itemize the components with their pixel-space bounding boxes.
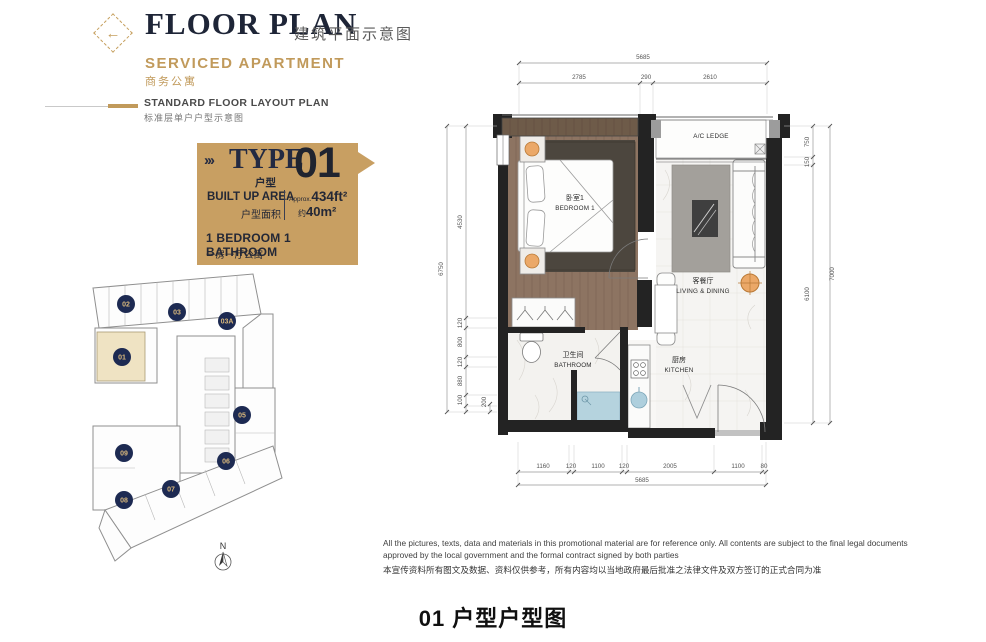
disclaimer-cn: 本宣传资料所有图文及数据、资料仅供参考，所有内容均以当地政府最后批准之法律文件及… xyxy=(383,564,935,576)
unit-badge-07: 07 xyxy=(162,480,180,498)
chevrons-icon: ››› xyxy=(204,152,213,169)
living-label-cn: 客餐厅 xyxy=(693,276,714,285)
built-up-area-label-cn: 户型面积 xyxy=(241,206,281,221)
card-divider xyxy=(284,190,285,220)
unit-type-card: ››› TYPE 户型 01 BUILT UP AREA 户型面积 Approx… xyxy=(197,143,358,265)
svg-text:05: 05 xyxy=(238,413,246,420)
unit-badge-06: 06 xyxy=(217,452,235,470)
svg-text:2785: 2785 xyxy=(572,74,586,81)
svg-text:880: 880 xyxy=(457,375,464,386)
approx-prefix: Approx. xyxy=(289,196,311,203)
key-plan-footprint xyxy=(93,274,282,561)
svg-text:N: N xyxy=(220,541,227,551)
svg-text:120: 120 xyxy=(457,317,464,328)
sofa xyxy=(733,160,765,268)
svg-text:08: 08 xyxy=(120,498,128,505)
north-compass-icon: N xyxy=(215,541,231,570)
ac-ledge-label: A/C LEDGE xyxy=(693,133,728,140)
layout-description-cn: 一房一厅公寓 xyxy=(206,247,263,261)
svg-text:290: 290 xyxy=(641,74,652,81)
main-floor-plan: 卧室1 BEDROOM 1 xyxy=(435,40,900,500)
svg-text:6100: 6100 xyxy=(804,287,811,301)
dining-set xyxy=(655,273,677,345)
subtitle: SERVICED APARTMENT xyxy=(145,55,345,72)
disclaimer-en: All the pictures, texts, data and materi… xyxy=(383,538,935,561)
unit-badge-03A: 03A xyxy=(218,312,236,330)
svg-text:4530: 4530 xyxy=(457,215,464,229)
svg-text:1100: 1100 xyxy=(731,463,745,470)
tv-unit xyxy=(692,200,718,237)
unit-number: 01 xyxy=(294,139,340,188)
page-title-cn: 建筑平面示意图 xyxy=(294,23,413,44)
svg-text:120: 120 xyxy=(457,356,464,367)
left-arrow-icon: ← xyxy=(106,26,121,41)
svg-text:2005: 2005 xyxy=(663,463,677,470)
unit-badge-05: 05 xyxy=(233,406,251,424)
unit-badge-08: 08 xyxy=(115,491,133,509)
svg-text:120: 120 xyxy=(619,463,630,470)
living-label-en: LIVING & DINING xyxy=(676,288,729,295)
divider-gold xyxy=(108,104,138,108)
svg-text:06: 06 xyxy=(222,459,230,466)
unit-badge-03: 03 xyxy=(168,303,186,321)
svg-text:150: 150 xyxy=(804,156,811,167)
card-tail-pointer xyxy=(358,152,375,174)
ac-ledge: A/C LEDGE xyxy=(651,117,780,162)
type-label: TYPE xyxy=(229,144,304,176)
bedroom-label-cn: 卧室1 xyxy=(566,193,584,202)
kitchen-label-en: KITCHEN xyxy=(664,367,693,374)
svg-text:7000: 7000 xyxy=(829,267,836,281)
svg-text:5685: 5685 xyxy=(636,54,650,61)
area-metric: 约40m² xyxy=(298,204,336,219)
subtitle-cn: 商务公寓 xyxy=(145,73,197,89)
entry-threshold xyxy=(715,430,760,436)
stove-icon xyxy=(631,360,648,378)
area-imperial-value: 434ft² xyxy=(311,189,347,204)
metric-prefix: 约 xyxy=(298,209,306,218)
area-metric-value: 40m² xyxy=(306,204,336,219)
kitchen-counter xyxy=(628,345,650,428)
key-plan: 02 03 03A 01 05 09 06 07 08 N xyxy=(85,268,285,578)
bathroom-label-cn: 卫生间 xyxy=(563,350,584,359)
unit-badge-09: 09 xyxy=(115,444,133,462)
svg-text:6750: 6750 xyxy=(438,262,445,276)
unit-badge-02: 02 xyxy=(117,295,135,313)
brand-diamond-icon: ← xyxy=(92,12,134,54)
svg-text:01: 01 xyxy=(118,355,126,362)
svg-text:100: 100 xyxy=(457,394,464,405)
svg-text:750: 750 xyxy=(804,136,811,147)
kitchen-label-cn: 厨房 xyxy=(672,355,686,364)
bedroom-label-en: BEDROOM 1 xyxy=(555,205,595,212)
svg-text:03: 03 xyxy=(173,310,181,317)
svg-text:03A: 03A xyxy=(221,319,234,326)
left-window xyxy=(497,135,509,165)
wardrobe xyxy=(512,298,575,327)
unit-badge-01: 01 xyxy=(113,348,131,366)
disclaimer: All the pictures, texts, data and materi… xyxy=(383,538,935,576)
type-label-cn: 户型 xyxy=(255,175,276,190)
svg-text:1160: 1160 xyxy=(536,463,550,470)
brochure-page: ← FLOOR PLAN 建筑平面示意图 SERVICED APARTMENT … xyxy=(0,0,986,642)
area-imperial: Approx.434ft² xyxy=(289,189,347,204)
svg-text:1100: 1100 xyxy=(591,463,605,470)
page-caption: 01 户型户型图 xyxy=(0,601,986,633)
divider-hairline xyxy=(45,106,113,107)
svg-text:2610: 2610 xyxy=(703,74,717,81)
wood-ledge xyxy=(502,115,638,136)
section-title-cn: 标准层单户户型示意图 xyxy=(144,111,244,124)
svg-text:800: 800 xyxy=(457,336,464,347)
svg-text:120: 120 xyxy=(566,463,577,470)
svg-text:5685: 5685 xyxy=(635,477,649,484)
built-up-area-label: BUILT UP AREA xyxy=(207,191,294,203)
svg-text:200: 200 xyxy=(481,396,488,407)
svg-text:80: 80 xyxy=(761,463,768,470)
section-title: STANDARD FLOOR LAYOUT PLAN xyxy=(144,97,329,109)
bathroom-label-en: BATHROOM xyxy=(554,362,592,369)
svg-text:07: 07 xyxy=(167,487,175,494)
svg-text:02: 02 xyxy=(122,302,130,309)
svg-text:09: 09 xyxy=(120,451,128,458)
